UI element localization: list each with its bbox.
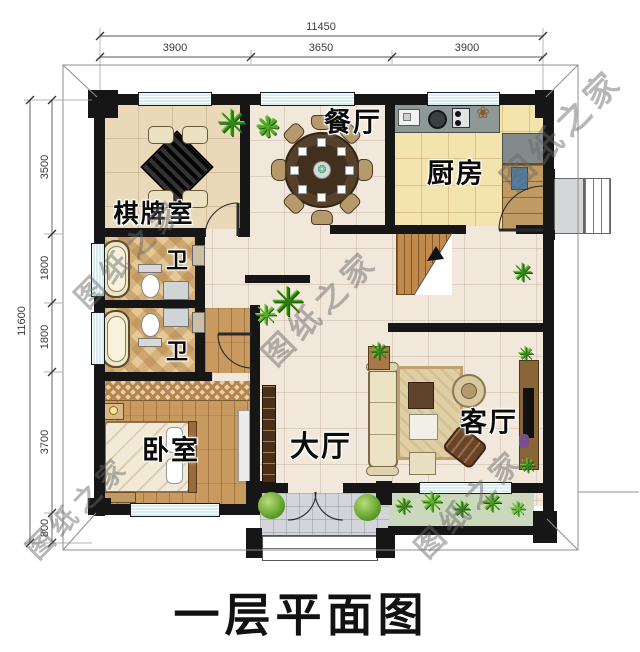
room-label-bath2: 卫 <box>166 334 190 366</box>
floor-plan-page: ❂ ❀ <box>0 0 640 652</box>
plant-icon: ✳ <box>369 341 388 364</box>
room-label-dining: 餐厅 <box>324 101 382 140</box>
dim-left-seg1: 3500 <box>39 155 51 179</box>
room-label-living: 客厅 <box>460 401 518 440</box>
dim-top-total: 11450 <box>306 21 336 33</box>
miter-line <box>63 65 97 97</box>
plant-icon: ❋ <box>256 114 279 142</box>
dim-left-seg2: 1800 <box>39 256 51 280</box>
dim-left-seg4: 3700 <box>39 430 51 454</box>
dim-top-seg2: 3650 <box>309 42 333 54</box>
miter-line <box>547 519 578 550</box>
room-label-bath1: 卫 <box>166 243 190 275</box>
garden-plant-icon: ✳ <box>510 500 527 520</box>
counter-plant-icon: ❀ <box>476 106 489 122</box>
room-label-kitchen: 厨房 <box>427 152 485 191</box>
room-label-bedroom: 卧室 <box>142 429 200 468</box>
garden-plant-icon: ✳ <box>395 496 413 518</box>
dim-left-seg3: 1800 <box>39 325 51 349</box>
dim-top-seg1: 3900 <box>163 42 187 54</box>
plant-icon: ✳ <box>518 346 534 365</box>
bush-icon <box>258 492 285 519</box>
dim-top-seg3: 3900 <box>455 42 479 54</box>
dim-left-total: 11600 <box>16 306 28 336</box>
bush-icon <box>354 494 381 521</box>
plant-icon: ✳ <box>513 262 534 287</box>
plant-icon: ✳ <box>217 106 247 142</box>
room-label-hall: 大厅 <box>290 423 352 465</box>
page-title: 一层平面图 <box>174 579 429 645</box>
